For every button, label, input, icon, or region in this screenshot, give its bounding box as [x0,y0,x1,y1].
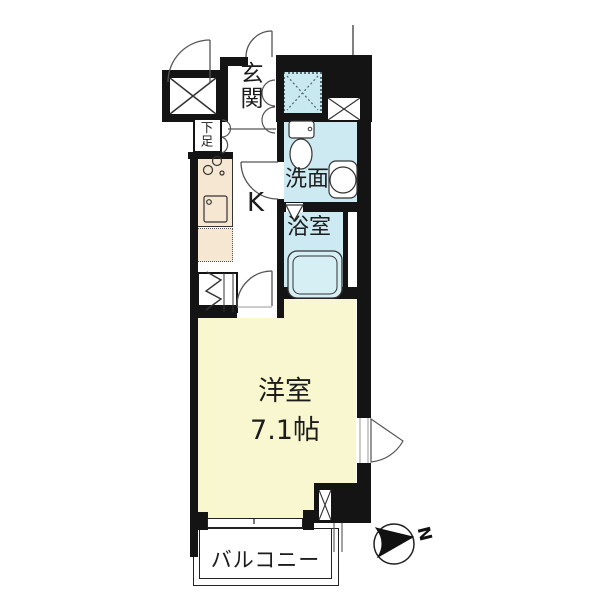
entrance-label: 玄関 [237,61,260,111]
bathroom-label: 浴室 [287,217,331,239]
main-room-floor-upper [284,297,356,318]
wall-room-top [198,305,237,318]
entrance-door-arc [246,31,272,57]
compass-north-label: N [413,525,436,544]
floor-plan: N 玄関 下足 K 洗面 浴室 洋室 7.1帖 バルコニー [0,0,600,600]
main-room-size: 7.1帖 [215,411,355,450]
pipe-space-strip [348,212,357,287]
room-door-arc [237,271,272,307]
balcony-label: バルコニー [199,550,332,571]
pipe-space-box [328,98,360,120]
washroom-label: 洗面 [285,169,329,191]
entrance-closet-doors [262,80,275,133]
wall-corridor-washroom-a [277,120,284,162]
shoe-storage-label: 下足 [199,121,212,148]
balcony-window [207,518,303,528]
elevator-shaft-box [170,78,216,114]
compass-circle [374,524,414,564]
compass-needle-icon [376,528,413,557]
wall-left-exterior [190,152,198,557]
compass: N [374,524,435,564]
exterior-right-door [360,418,403,463]
wall-corridor-washroom-b [277,199,284,318]
kitchen-counter [196,158,233,227]
main-room-label: 洋室 7.1帖 [215,372,355,450]
wall-entrance-right [276,66,284,120]
kitchen-label: K [247,190,264,216]
wall-room-bottom-mid [303,510,314,530]
main-room-name: 洋室 [215,372,355,411]
wall-entrance-left [220,57,228,122]
pipe-space-strip-bottom [319,490,331,520]
bathroom-door-gap [286,203,303,212]
wall-bathroom-bottom [277,287,371,299]
washing-machine-space [283,72,322,115]
refrigerator-space [197,228,233,262]
shoe-box-doors [222,120,231,153]
